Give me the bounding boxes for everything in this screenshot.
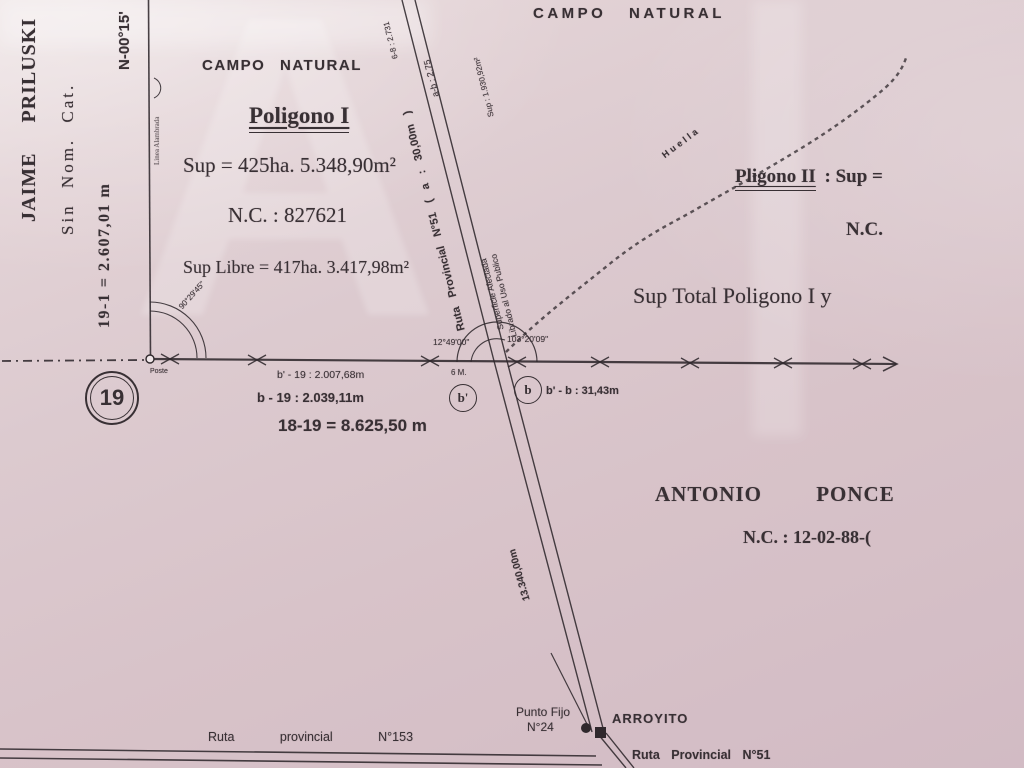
arroyito-square bbox=[595, 727, 606, 738]
campo-natural-left-label: CAMPO NATURAL bbox=[202, 57, 362, 74]
junction-angle-right: 103°20'09" bbox=[507, 334, 548, 344]
ruta153-road bbox=[0, 749, 602, 765]
arroyito-label: ARROYITO bbox=[612, 711, 688, 726]
poligono-2-title: Pligono II bbox=[735, 166, 816, 191]
plan-linework bbox=[0, 0, 1024, 768]
dashed-boundary-left bbox=[2, 360, 146, 361]
junction-angle-left: 12°49'00" bbox=[433, 337, 469, 347]
ruta51-below-junction bbox=[598, 733, 634, 768]
dist-18-19: 18-19 = 8.625,50 m bbox=[278, 416, 427, 436]
sup-total-label: Sup Total Poligono I y bbox=[633, 283, 832, 309]
owner-name-ponce: ANTONIO PONCE bbox=[655, 482, 895, 507]
vertex-19-circle: 19 bbox=[85, 371, 139, 425]
fence-line-label: Linea Alambrada bbox=[153, 117, 161, 165]
poligono-1-sup: Sup = 425ha. 5.348,90m² bbox=[183, 153, 396, 178]
dist-b-19: b - 19 : 2.039,11m bbox=[257, 390, 364, 405]
poligono-2-title-row: Pligono II : Sup = bbox=[735, 166, 883, 188]
ruta51-bottom-label: Ruta Provincial N°51 bbox=[632, 748, 770, 762]
side-19-1-distance: 19-1 = 2.607,01 m bbox=[96, 183, 114, 328]
ruta51-lower bbox=[494, 361, 604, 732]
dist-bprime-19: b' - 19 : 2.007,68m bbox=[277, 369, 364, 381]
bearing-label: N-00°15' bbox=[116, 11, 133, 70]
punto-fijo-line1: Punto Fijo bbox=[516, 705, 570, 719]
punto-fijo-dot bbox=[581, 723, 591, 733]
survey-plan-photo: A bbox=[0, 0, 1024, 768]
angle-arc-junction-inner bbox=[471, 339, 505, 362]
ponce-nc: N.C. : 12-02-88-( bbox=[743, 527, 871, 548]
poligono-2-nc: N.C. bbox=[846, 219, 883, 241]
vertex-19-point bbox=[146, 355, 154, 363]
campo-natural-top-label: CAMPO NATURAL bbox=[533, 5, 725, 22]
poligono-1-nc: N.C. : 827621 bbox=[228, 203, 347, 228]
vertex-19-number: 19 bbox=[100, 385, 124, 411]
poligono-1-title: Poligono I bbox=[249, 103, 349, 133]
angle-arc-19-outer bbox=[150, 302, 206, 358]
fence-bracket bbox=[154, 78, 161, 98]
baseline-tick-marks bbox=[161, 354, 871, 369]
no-cadastre-label: Sin Nom. Cat. bbox=[58, 83, 78, 235]
owner-name-left: JAIME PRILUSKI bbox=[18, 18, 41, 222]
junction-six-m: 6 M. bbox=[451, 368, 467, 377]
point-b-circle: b bbox=[514, 376, 542, 404]
poligono-1-sup-libre: Sup Libre = 417ha. 3.417,98m² bbox=[183, 257, 409, 278]
poligono-2-sup: : Sup = bbox=[825, 166, 883, 187]
poste-label: Poste bbox=[150, 368, 168, 375]
fence-line-north bbox=[149, 0, 151, 358]
dist-bprime-b: b' - b : 31,43m bbox=[546, 385, 619, 397]
point-b-prime-circle: b' bbox=[449, 384, 477, 412]
punto-fijo-line2: N°24 bbox=[527, 720, 554, 734]
ruta153-label: Ruta provincial N°153 bbox=[208, 730, 413, 744]
